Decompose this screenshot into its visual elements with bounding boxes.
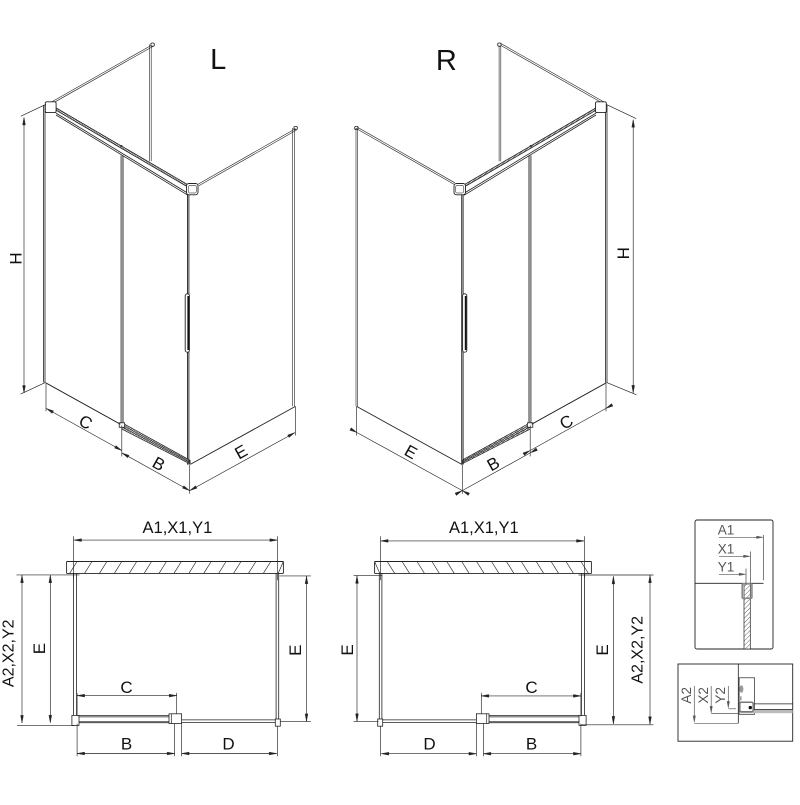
svg-text:H: H — [7, 252, 26, 264]
svg-text:Y2: Y2 — [713, 687, 728, 704]
svg-text:D: D — [222, 735, 234, 754]
svg-text:E: E — [30, 643, 49, 654]
svg-text:C: C — [525, 678, 537, 697]
svg-text:A1,X1,Y1: A1,X1,Y1 — [449, 519, 519, 537]
svg-text:L: L — [210, 44, 226, 76]
svg-text:H: H — [613, 247, 632, 259]
svg-text:E: E — [593, 644, 612, 655]
svg-text:A1,X1,Y1: A1,X1,Y1 — [143, 519, 213, 537]
svg-text:X1: X1 — [718, 542, 735, 557]
svg-text:E: E — [286, 645, 305, 656]
svg-text:C: C — [120, 678, 132, 697]
svg-text:B: B — [121, 735, 132, 754]
svg-text:Y1: Y1 — [718, 560, 735, 575]
svg-text:A1: A1 — [718, 523, 735, 538]
svg-text:B: B — [526, 735, 537, 754]
svg-text:X2: X2 — [696, 687, 711, 704]
svg-text:A2,X2,Y2: A2,X2,Y2 — [630, 616, 647, 684]
svg-text:A2,X2,Y2: A2,X2,Y2 — [0, 619, 17, 687]
svg-text:D: D — [423, 735, 435, 754]
svg-text:A2: A2 — [679, 687, 694, 704]
svg-text:E: E — [338, 644, 357, 655]
svg-text:R: R — [436, 45, 457, 77]
